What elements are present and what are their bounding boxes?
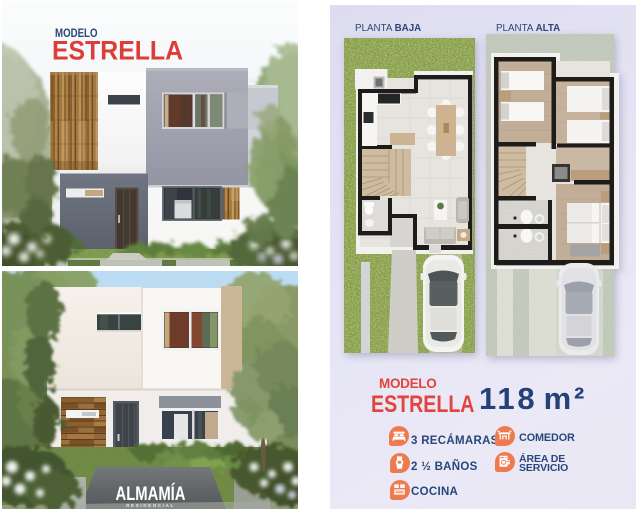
svg-text:ESTRELLA: ESTRELLA (52, 36, 183, 66)
svg-text:RESIDENCIAL: RESIDENCIAL (126, 503, 175, 508)
svg-text:ALMAMÍA: ALMAMÍA (116, 482, 186, 505)
